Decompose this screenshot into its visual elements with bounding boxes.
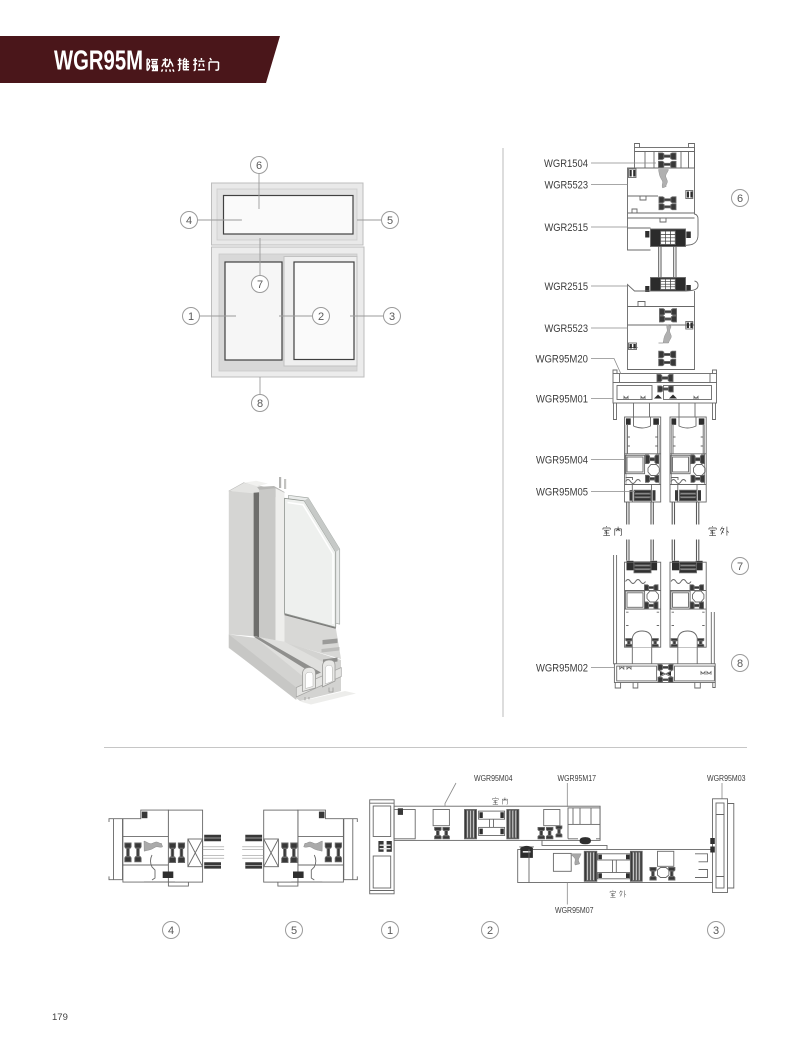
svg-text:WGR2515: WGR2515 xyxy=(545,222,589,234)
svg-text:WGR95M20: WGR95M20 xyxy=(536,354,589,366)
svg-text:WGR2515: WGR2515 xyxy=(545,281,589,293)
svg-text:8: 8 xyxy=(737,658,743,670)
svg-text:WGR1504: WGR1504 xyxy=(544,158,588,170)
svg-text:7: 7 xyxy=(737,561,743,573)
svg-text:WGR95M03: WGR95M03 xyxy=(707,774,746,783)
svg-text:3: 3 xyxy=(713,925,719,937)
svg-text:7: 7 xyxy=(257,279,263,291)
svg-text:179: 179 xyxy=(52,1012,68,1023)
svg-text:WGR95M05: WGR95M05 xyxy=(536,487,588,499)
svg-text:WGR95M04: WGR95M04 xyxy=(536,455,588,467)
svg-text:6: 6 xyxy=(256,160,262,172)
svg-text:4: 4 xyxy=(168,925,174,937)
svg-text:WGR5523: WGR5523 xyxy=(545,323,589,335)
svg-text:3: 3 xyxy=(389,311,395,323)
svg-text:WGR95M04: WGR95M04 xyxy=(474,774,513,783)
svg-text:WGR95M01: WGR95M01 xyxy=(536,394,588,406)
svg-text:WGR95M17: WGR95M17 xyxy=(558,774,597,783)
svg-text:WGR5523: WGR5523 xyxy=(545,180,589,192)
svg-text:6: 6 xyxy=(737,193,743,205)
svg-text:WGR95M02: WGR95M02 xyxy=(536,663,588,675)
svg-text:5: 5 xyxy=(387,215,393,227)
svg-text:5: 5 xyxy=(291,925,297,937)
svg-text:WGR95M07: WGR95M07 xyxy=(555,906,594,915)
svg-text:4: 4 xyxy=(186,215,192,227)
svg-text:2: 2 xyxy=(487,925,493,937)
svg-text:8: 8 xyxy=(257,398,263,410)
svg-text:1: 1 xyxy=(188,311,194,323)
svg-text:WGR95M: WGR95M xyxy=(54,45,143,76)
svg-text:1: 1 xyxy=(387,925,393,937)
svg-text:2: 2 xyxy=(318,311,324,323)
